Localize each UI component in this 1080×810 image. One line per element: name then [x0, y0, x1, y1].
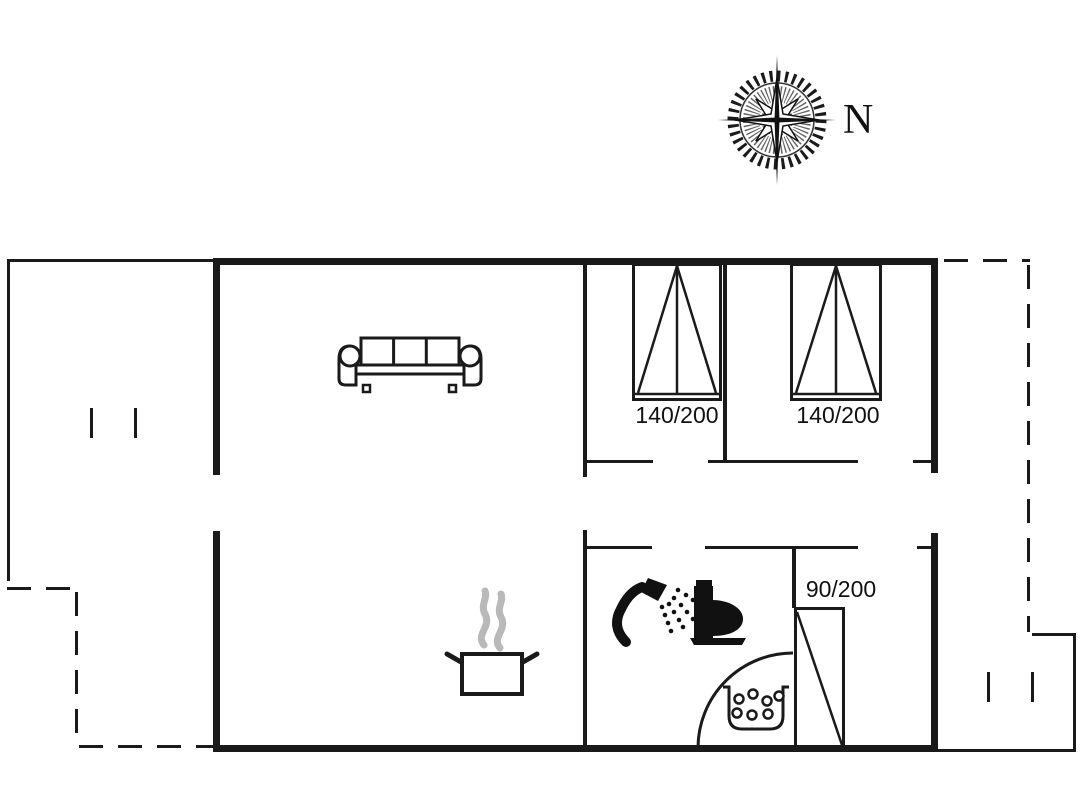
- annex-left-dashed-h2: [79, 745, 213, 748]
- terrace-right-dashed-h: [944, 259, 1030, 262]
- bed2-size-label: 140/200: [792, 402, 884, 429]
- wall-bathroom-bedroom3: [792, 549, 796, 608]
- wall-exterior-left-lower: [213, 531, 220, 752]
- single-bed-icon: [794, 607, 845, 748]
- wall-corridor-south-1: [587, 546, 652, 549]
- terrace-right-tick-1: [987, 672, 990, 702]
- wall-corridor-north-2: [708, 460, 858, 463]
- shower-tray-bubbles-icon: [720, 683, 792, 738]
- wall-bedroom1-bedroom2: [723, 262, 727, 463]
- terrace-right-side-line: [1073, 633, 1076, 752]
- compass-north-label: N: [843, 96, 873, 144]
- bed3-size-label: 90/200: [800, 576, 882, 603]
- terrace-right-dashed-v: [1027, 265, 1030, 632]
- wall-corridor-north-3: [913, 460, 931, 463]
- wall-corridor-south-3: [917, 546, 931, 549]
- wall-living-bedroom1: [583, 262, 587, 477]
- annex-left-dashed-v: [75, 592, 78, 747]
- cooking-pot-steam-icon: [444, 588, 540, 700]
- bed1-size-label: 140/200: [628, 402, 726, 429]
- wall-corridor-north-1: [587, 460, 653, 463]
- compass-rose-icon: [695, 38, 861, 204]
- terrace-right-tick-2: [1031, 672, 1034, 702]
- annex-left-tick-1: [90, 408, 93, 438]
- sofa-icon: [337, 335, 483, 397]
- terrace-right-bottom-line: [938, 749, 1076, 752]
- wall-corridor-south-2: [705, 546, 858, 549]
- annex-left-side-line: [7, 259, 10, 581]
- wall-exterior-right-lower: [931, 533, 938, 752]
- annex-left-top-line: [7, 259, 213, 262]
- floor-plan: N 140/200 140/200 90/200: [0, 0, 1080, 810]
- wall-kitchen-bathroom: [583, 530, 587, 745]
- terrace-right-top-line: [1032, 633, 1076, 636]
- double-bed-icon: [632, 263, 722, 401]
- wall-exterior-right-upper: [931, 258, 938, 473]
- toilet-icon: [688, 578, 750, 648]
- annex-left-dashed-h1: [7, 587, 79, 590]
- annex-left-tick-2: [134, 408, 137, 438]
- double-bed-icon: [790, 263, 882, 401]
- wall-exterior-left-upper: [213, 258, 220, 475]
